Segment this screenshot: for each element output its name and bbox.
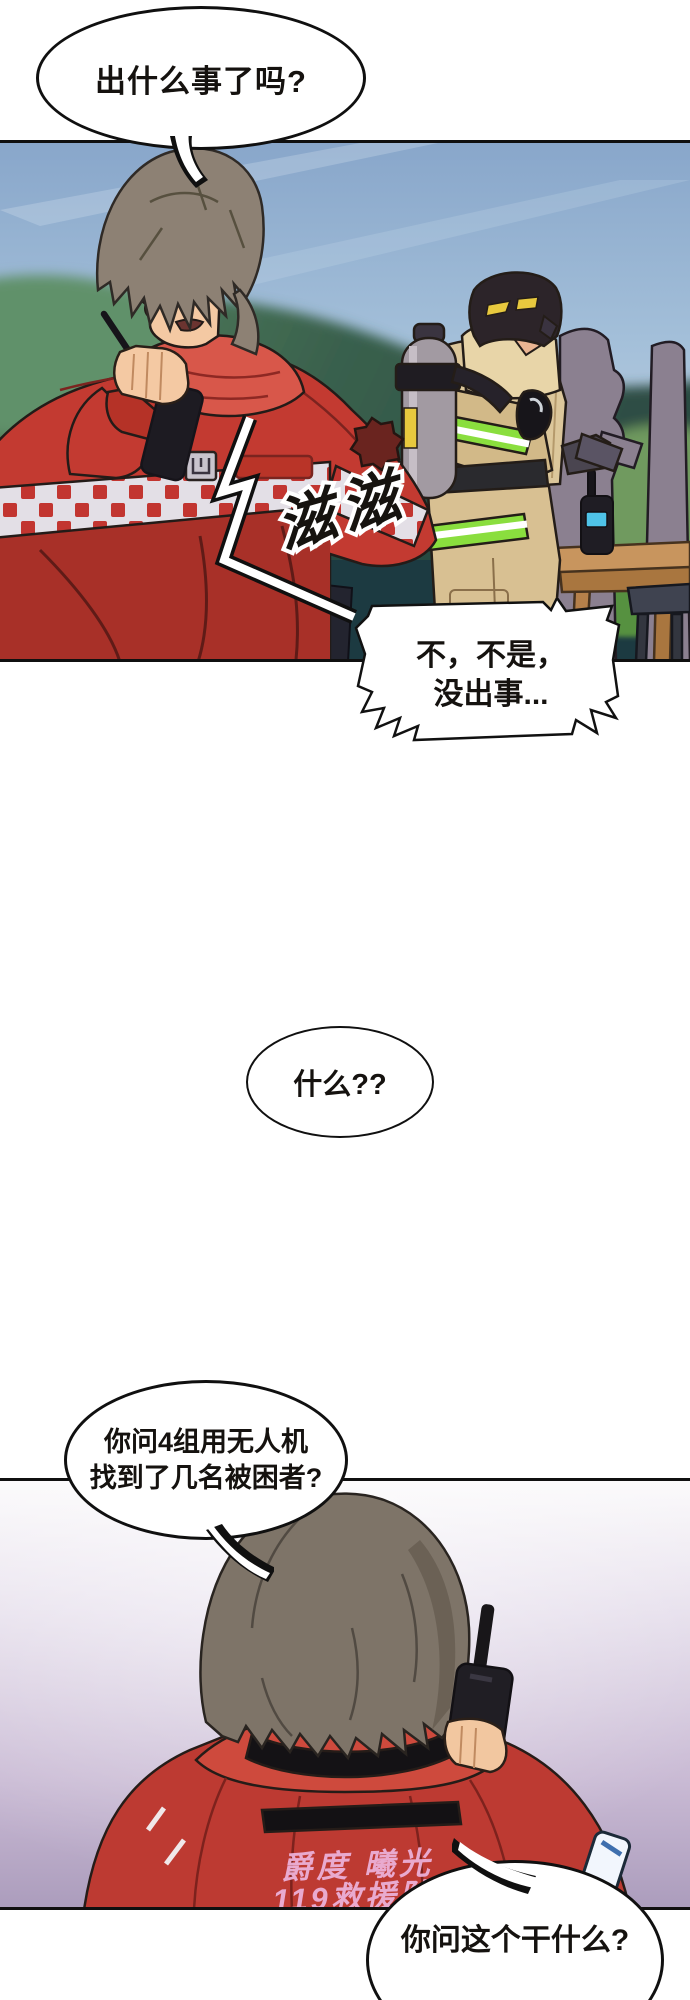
bubble-4-tail xyxy=(198,1524,274,1590)
bubble-1-text: 出什么事了吗? xyxy=(95,56,307,101)
speech-bubble-1: 出什么事了吗? xyxy=(36,6,366,150)
panel-1: 滋滋 xyxy=(0,140,690,662)
bubble-1-tail xyxy=(156,130,220,194)
speech-bubble-4: 你问4组用无人机 找到了几名被困者? xyxy=(64,1380,348,1540)
bubble-5-text: 你问这个干什么? xyxy=(401,1915,629,1959)
bubble-3-text: 什么?? xyxy=(293,1061,386,1103)
panel-2: 爵度 曦光 119救援队 xyxy=(0,1478,690,1910)
speech-bubble-3: 什么?? xyxy=(246,1026,434,1138)
bubble-2-text: 不，不是， 没出事... xyxy=(366,622,616,728)
comic-page: 滋滋 xyxy=(0,0,690,2000)
hand xyxy=(114,346,188,404)
bubble-5-tail xyxy=(452,1836,540,1894)
